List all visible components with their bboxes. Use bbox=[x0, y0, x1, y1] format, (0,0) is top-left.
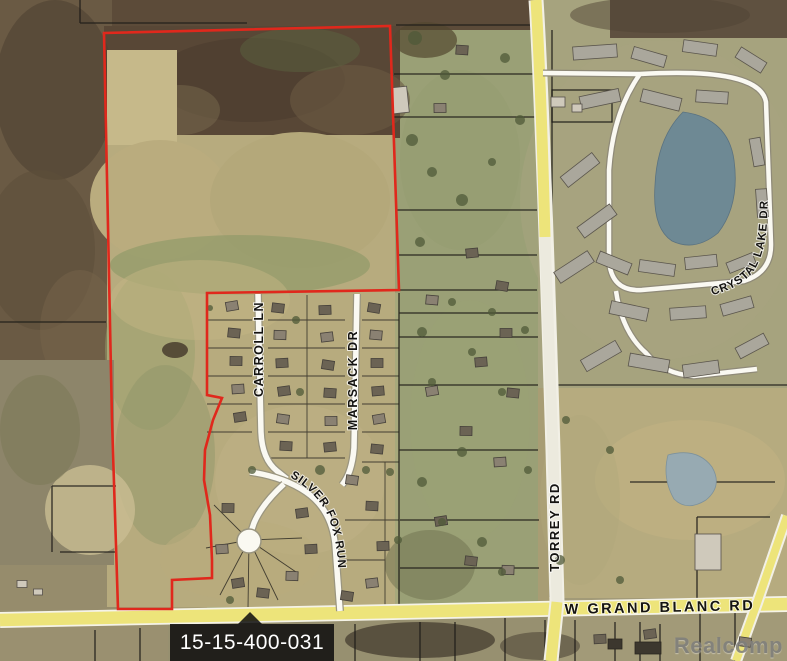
aerial-parcel-map: TORREY RD W GRAND BLANC RD CARROLL LN MA… bbox=[0, 0, 787, 661]
parcel-id-text: 15-15-400-031 bbox=[180, 631, 324, 655]
road-label-torrey: TORREY RD bbox=[547, 482, 562, 572]
map-canvas: TORREY RD W GRAND BLANC RD CARROLL LN MA… bbox=[0, 0, 787, 661]
realcomp-watermark: Realcomp bbox=[674, 633, 783, 659]
road-label-carroll: CARROLL LN bbox=[252, 301, 266, 397]
road-label-marsack: MARSACK DR bbox=[346, 330, 360, 430]
parcel-id-callout: 15-15-400-031 bbox=[170, 624, 334, 661]
